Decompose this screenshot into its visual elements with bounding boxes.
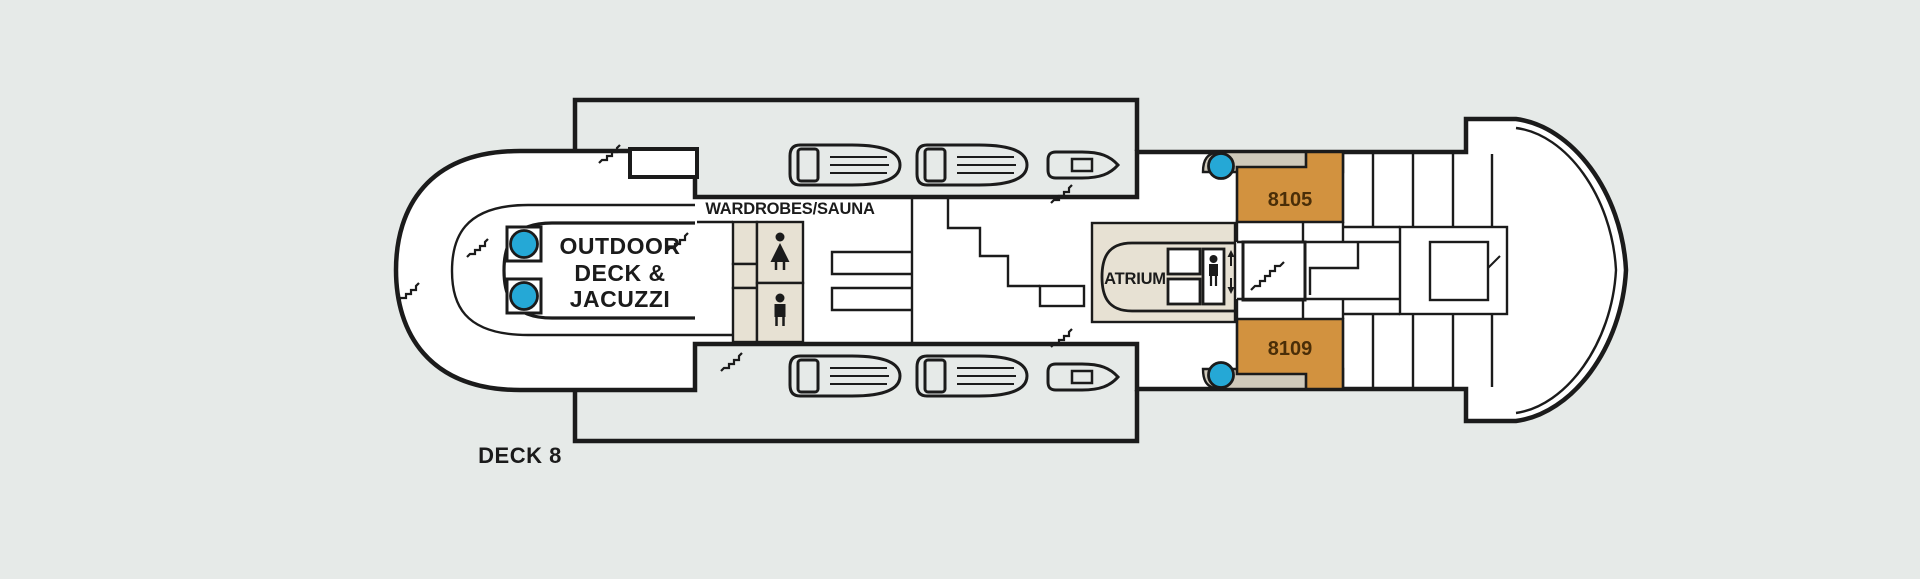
wardrobes-sauna-label: WARDROBES/SAUNA [705, 200, 875, 218]
jacuzzi-icon [511, 231, 538, 258]
jacuzzi-icon [1209, 363, 1234, 388]
sauna-room [733, 222, 757, 264]
sauna-room [733, 264, 757, 288]
lifeboat-row-top [790, 145, 1118, 185]
outdoor-deck-label-line2: DECK & [574, 260, 665, 286]
deck-plan-canvas: OUTDOOR DECK & JACUZZI WARDROBES/SAUNA [0, 0, 1920, 579]
lifeboat-icon [917, 356, 1027, 396]
jacuzzi-icon [1209, 154, 1234, 179]
elevator-car [1168, 249, 1200, 274]
stairwell-icon [1243, 242, 1305, 300]
upper-boat-deck-overhang [575, 100, 1137, 151]
lifeboat-icon [917, 145, 1027, 185]
cabin-8109-label[interactable]: 8109 [1268, 338, 1313, 360]
lifeboat-icon [790, 356, 900, 396]
elevator-car [1168, 279, 1200, 304]
outdoor-deck-label-line3: JACUZZI [570, 286, 671, 312]
staircase-icon [721, 353, 742, 371]
lifeboat-icon [790, 145, 900, 185]
deck-title: DECK 8 [478, 443, 562, 468]
atrium-label: ATRIUM [1104, 270, 1166, 288]
jacuzzi-icon [511, 283, 538, 310]
sauna-room [733, 288, 757, 342]
deck-plan-svg: OUTDOOR DECK & JACUZZI WARDROBES/SAUNA [0, 0, 1920, 579]
cabin-8105-label[interactable]: 8105 [1268, 189, 1313, 211]
tender-boat-icon [1048, 364, 1118, 390]
lower-boat-deck-overhang [575, 390, 1137, 441]
elevator-icon [1203, 249, 1224, 304]
tender-boat-icon [1048, 152, 1118, 178]
lifeboat-row-bottom [790, 356, 1118, 396]
outdoor-deck-label-line1: OUTDOOR [559, 233, 680, 259]
deckhouse-box [630, 149, 697, 177]
